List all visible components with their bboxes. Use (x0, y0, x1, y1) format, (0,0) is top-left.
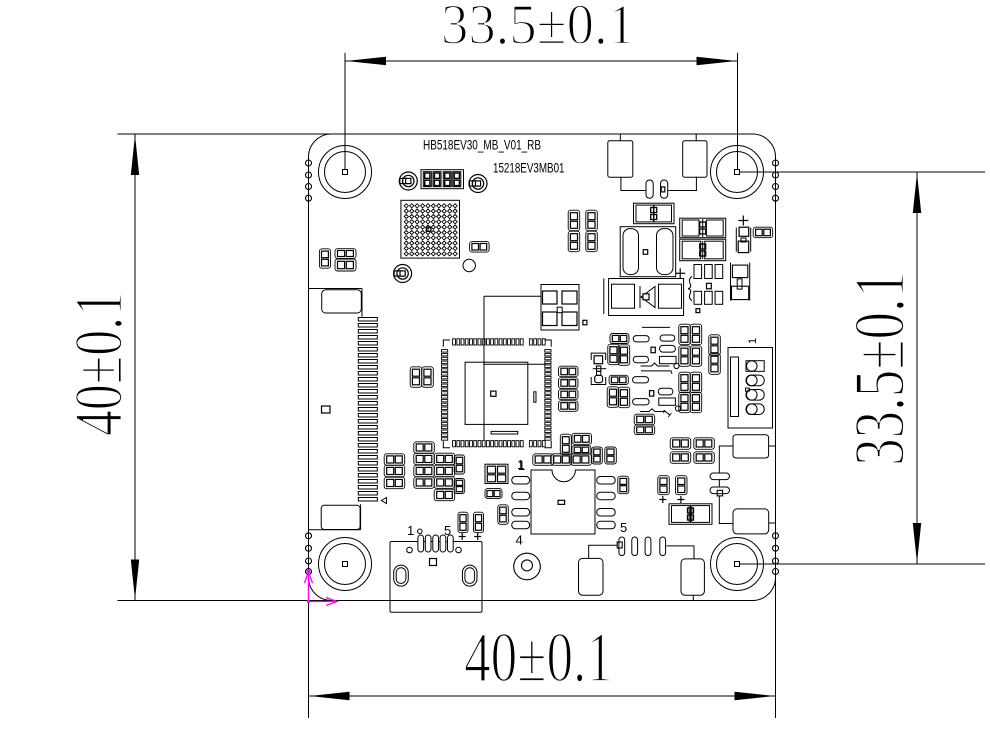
svg-text:5: 5 (444, 523, 451, 538)
svg-text:4: 4 (516, 533, 523, 548)
svg-text:33.5±0.1: 33.5±0.1 (441, 0, 635, 57)
svg-text:15218EV3MB01: 15218EV3MB01 (493, 160, 565, 176)
svg-text:33.5±0.1: 33.5±0.1 (840, 271, 920, 466)
svg-text:1: 1 (407, 523, 414, 538)
svg-text:1: 1 (517, 457, 524, 472)
svg-text:40±0.1: 40±0.1 (464, 619, 613, 697)
svg-text:5: 5 (620, 520, 627, 535)
svg-text:1: 1 (747, 338, 759, 344)
svg-text:HB518EV30_MB_V01_RB: HB518EV30_MB_V01_RB (423, 137, 541, 153)
svg-text:40±0.1: 40±0.1 (61, 291, 137, 436)
